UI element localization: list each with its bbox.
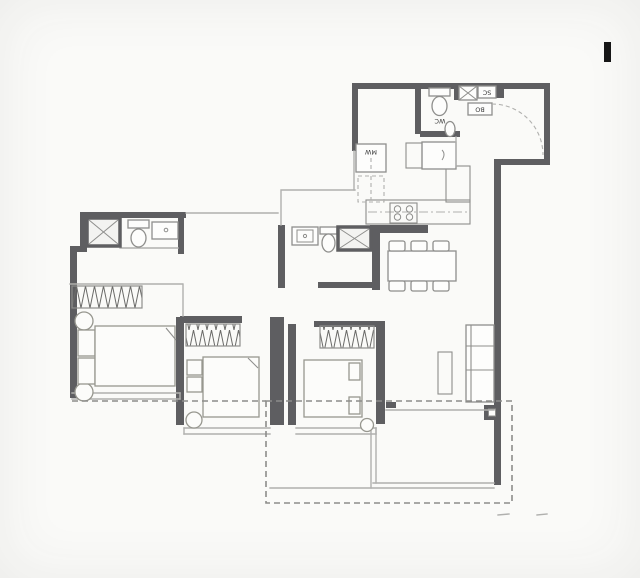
dining-chair [389,281,405,291]
toilet-icon [128,220,149,247]
dining-chair [411,281,427,291]
vanity-basin-icon [292,227,318,245]
dining-area [388,241,456,291]
sc-label: SC [482,89,491,97]
toilet-icon [320,227,337,252]
bed [203,357,259,417]
living-area [438,325,494,402]
bedroom-3 [304,326,374,432]
black-mark [604,42,611,62]
wc-label: WC [434,117,445,125]
pillow [78,330,95,356]
sc-box: SC [478,86,496,98]
shower-icon [87,218,120,246]
floor-plan: MW WC SC BO [0,0,640,578]
wash-basin-icon [445,122,455,137]
sink-icon [459,86,477,100]
wc-room: WC [429,88,455,137]
master-bedroom [72,286,176,401]
pillow [349,397,360,414]
sofa [466,325,494,402]
pillow [349,363,360,380]
fridge [422,142,456,169]
dining-table [388,251,456,281]
side-table [361,419,374,432]
wardrobe [320,326,374,348]
cabinet [406,143,422,168]
side-table [75,312,93,330]
side-table [75,383,93,401]
pillow [187,377,202,392]
appliance-boxes: SC BO [459,86,496,115]
balcony-outline-dashed [72,401,547,515]
wardrobe [186,324,240,346]
mw-label: MW [364,148,377,156]
bedroom-2 [186,324,259,428]
bo-box: BO [468,103,492,115]
kitchen-counter-return [446,166,470,202]
bathroom-2 [292,227,371,252]
entry-door-arc [492,104,543,155]
microwave-unit: MW [356,144,386,172]
kitchen: MW [356,137,470,224]
dining-chair [433,281,449,291]
hob [390,203,417,223]
pillow [187,360,202,375]
bed [95,326,175,386]
floor-plan-page: MW WC SC BO [0,0,640,578]
wardrobe [72,286,142,308]
dining-chair [389,241,405,251]
shower-icon [338,227,371,250]
vanity-basin-icon [152,222,178,239]
toilet-icon [429,88,450,116]
column [484,405,500,420]
dining-chair [433,241,449,251]
side-table [186,412,202,428]
tv-console [438,352,452,394]
master-bathroom [87,218,178,247]
dining-chair [411,241,427,251]
pillow [78,358,95,384]
bo-label: BO [475,106,484,114]
